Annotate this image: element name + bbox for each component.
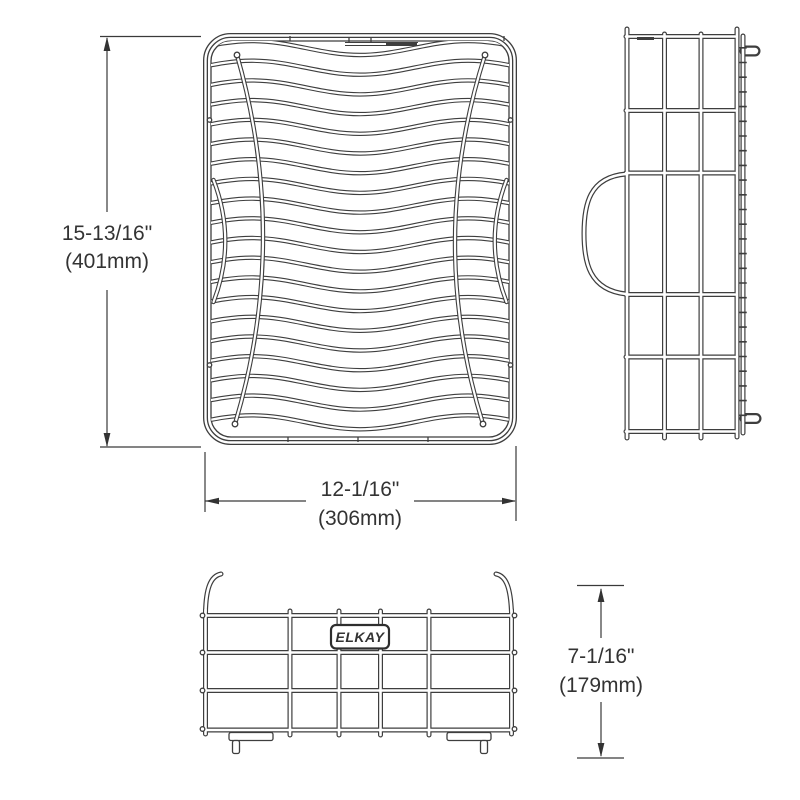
- height-dimension-inches: 15-13/16": [62, 222, 152, 245]
- width-dimension-mm: (306mm): [318, 507, 402, 530]
- wave-grid-pattern: [144, 41, 576, 429]
- feet: [229, 733, 491, 754]
- side-view: [584, 29, 756, 438]
- front-wire-frame: [205, 574, 512, 735]
- arrow-left-icon: [205, 498, 219, 505]
- elkay-logo-text: ELKAY: [336, 629, 386, 645]
- arrow-up-icon: [104, 37, 111, 51]
- arrow-right-icon: [502, 498, 516, 505]
- drawing-canvas: ELKAY 15-13/16" (401mm) 12-1/16" (306mm)…: [0, 0, 800, 800]
- front-view: ELKAY: [200, 574, 517, 754]
- arrow-down-icon: [598, 743, 605, 757]
- height-dimension: 15-13/16" (401mm): [62, 37, 201, 448]
- side-wire-frame: [584, 29, 743, 438]
- height-dimension-mm: (401mm): [65, 250, 149, 273]
- arrow-down-icon: [104, 433, 111, 447]
- width-dimension-inches: 12-1/16": [321, 478, 400, 501]
- width-dimension: 12-1/16" (306mm): [205, 446, 516, 530]
- depth-dimension: 7-1/16" (179mm): [559, 586, 643, 759]
- top-view: [144, 36, 576, 443]
- depth-dimension-inches: 7-1/16": [568, 645, 635, 668]
- elkay-basket-technical-drawing: ELKAY 15-13/16" (401mm) 12-1/16" (306mm)…: [0, 0, 800, 800]
- arrow-up-icon: [598, 588, 605, 602]
- depth-dimension-mm: (179mm): [559, 674, 643, 697]
- elkay-logo-badge: ELKAY: [331, 625, 389, 649]
